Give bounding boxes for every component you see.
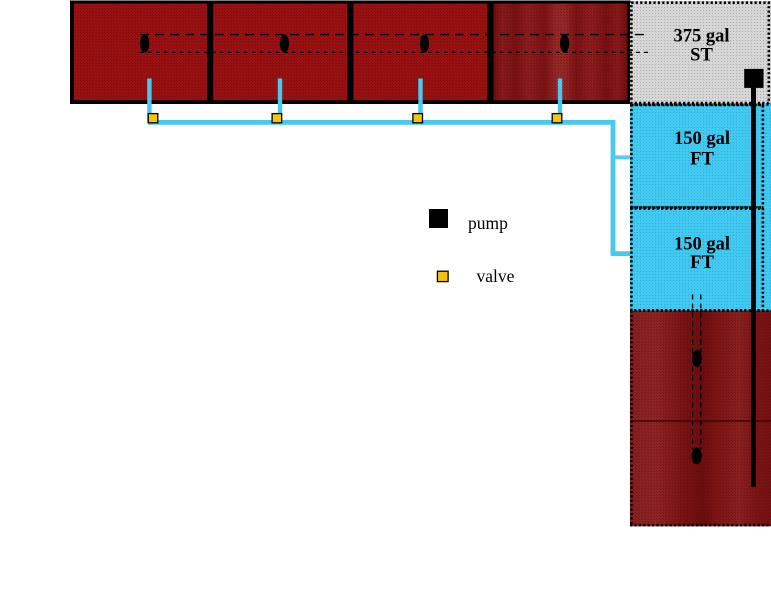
svg-text:FT: FT [690,253,714,273]
svg-text:375 gal: 375 gal [673,27,729,47]
svg-text:150 gal: 150 gal [674,129,730,149]
svg-text:ST: ST [690,46,713,66]
svg-text:150 gal: 150 gal [674,234,730,254]
svg-text:FT: FT [690,149,714,169]
svg-text:valve: valve [477,266,515,286]
svg-text:pump: pump [468,213,508,233]
